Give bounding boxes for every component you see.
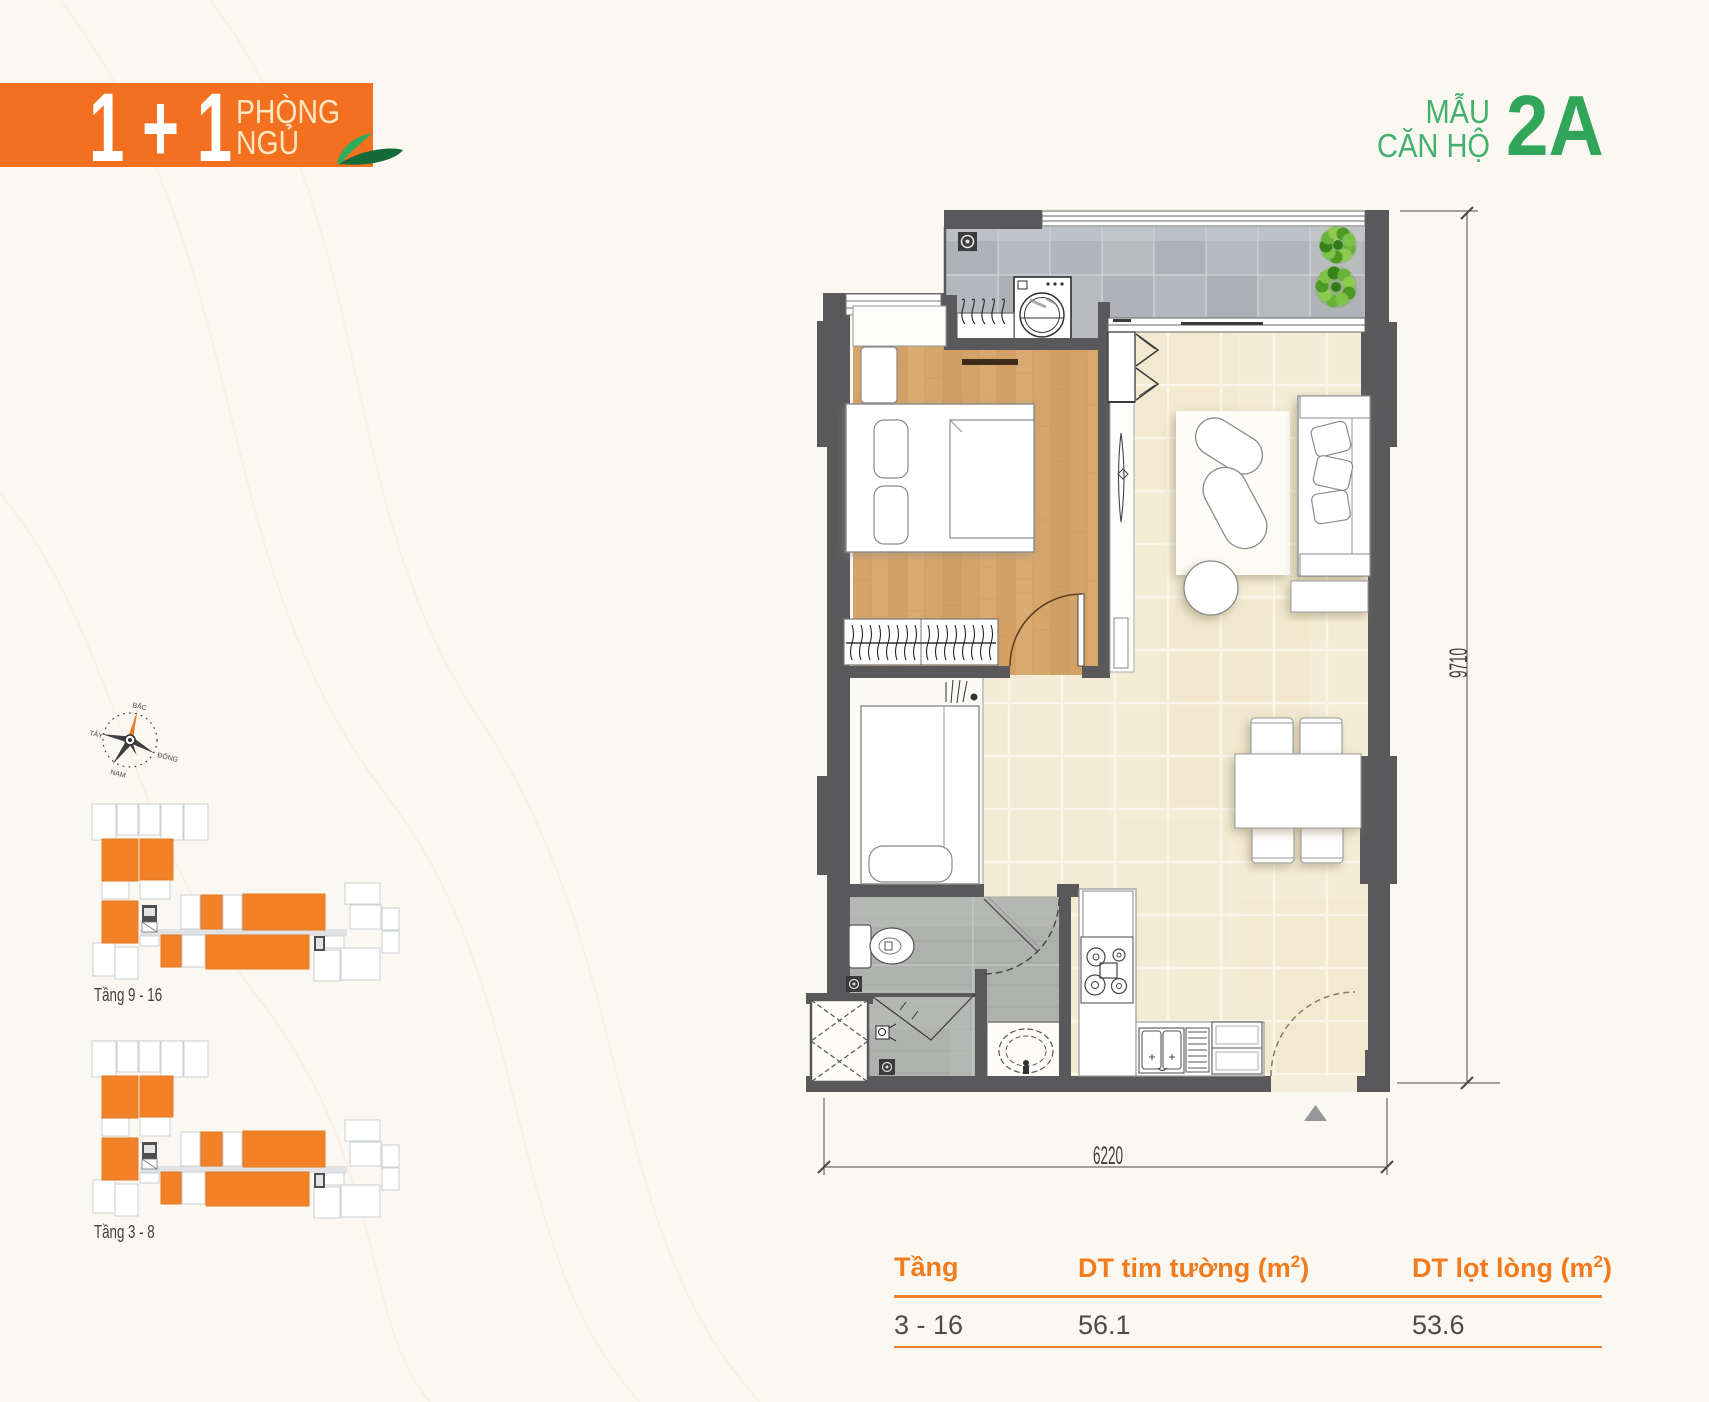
svg-text:6220: 6220 [1093,1143,1123,1170]
svg-text:TÂY: TÂY [89,728,105,740]
svg-text:ĐÔNG: ĐÔNG [157,750,180,764]
svg-text:9710: 9710 [1446,648,1473,678]
svg-text:NAM: NAM [110,769,127,780]
svg-text:BẮC: BẮC [132,700,148,712]
